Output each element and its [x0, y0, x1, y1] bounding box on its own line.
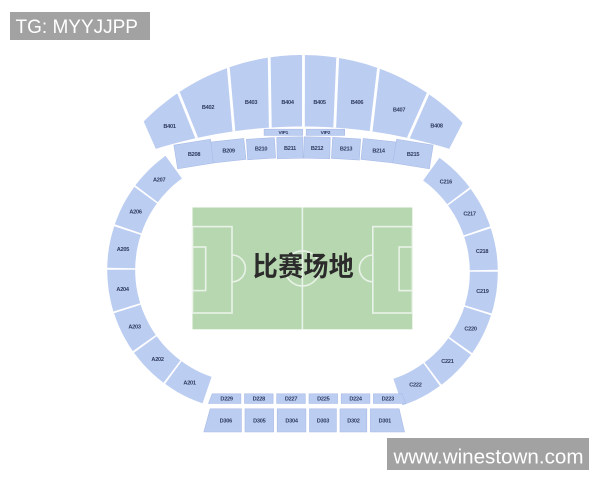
svg-text:D227: D227 — [285, 397, 298, 403]
svg-text:D305: D305 — [253, 418, 266, 424]
svg-text:C218: C218 — [476, 249, 489, 255]
svg-text:C219: C219 — [476, 289, 489, 295]
svg-text:B408: B408 — [430, 124, 443, 130]
svg-text:D224: D224 — [349, 397, 363, 403]
svg-text:D302: D302 — [347, 418, 360, 424]
svg-text:B405: B405 — [313, 100, 326, 106]
svg-text:B211: B211 — [284, 146, 296, 152]
svg-text:A205: A205 — [117, 247, 130, 253]
svg-text:B404: B404 — [281, 100, 295, 106]
svg-text:B213: B213 — [340, 147, 353, 153]
svg-text:A204: A204 — [116, 287, 130, 293]
svg-text:B401: B401 — [163, 124, 176, 130]
svg-text:B212: B212 — [311, 146, 324, 152]
svg-text:VIP2: VIP2 — [321, 130, 331, 136]
svg-text:D229: D229 — [220, 397, 233, 403]
svg-text:D225: D225 — [317, 397, 330, 403]
svg-text:C216: C216 — [440, 179, 453, 185]
svg-text:D303: D303 — [317, 418, 330, 424]
svg-text:B402: B402 — [202, 105, 215, 111]
svg-text:A206: A206 — [129, 209, 142, 215]
svg-text:A201: A201 — [183, 381, 196, 387]
svg-text:B403: B403 — [245, 100, 258, 106]
svg-text:B215: B215 — [407, 152, 420, 158]
svg-text:D304: D304 — [285, 418, 299, 424]
svg-text:C222: C222 — [409, 383, 422, 389]
svg-text:A207: A207 — [153, 177, 166, 183]
svg-text:D306: D306 — [220, 418, 233, 424]
svg-text:B407: B407 — [393, 108, 406, 114]
svg-text:B210: B210 — [255, 147, 268, 153]
svg-text:D301: D301 — [379, 418, 392, 424]
svg-text:TG: MYYJJPP: TG: MYYJJPP — [16, 17, 138, 38]
svg-text:B208: B208 — [188, 152, 201, 158]
svg-text:www.winestown.com: www.winestown.com — [393, 446, 584, 469]
svg-text:VIP1: VIP1 — [278, 130, 288, 136]
svg-text:B209: B209 — [222, 149, 235, 155]
svg-text:C221: C221 — [441, 359, 454, 365]
svg-text:B214: B214 — [372, 149, 386, 155]
svg-text:D228: D228 — [253, 397, 266, 403]
svg-text:A202: A202 — [151, 357, 164, 363]
svg-text:B406: B406 — [351, 100, 364, 106]
svg-text:A203: A203 — [128, 325, 141, 331]
svg-text:C217: C217 — [463, 211, 476, 217]
svg-text:D223: D223 — [382, 397, 395, 403]
svg-text:C220: C220 — [464, 327, 477, 333]
